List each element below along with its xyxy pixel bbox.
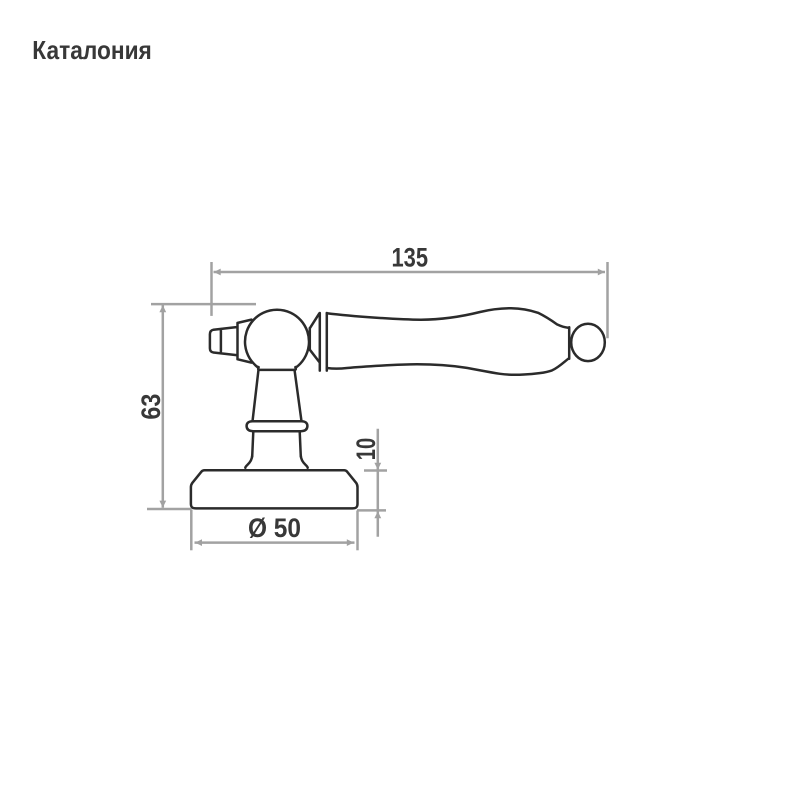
svg-text:Ø 50: Ø 50: [248, 513, 301, 543]
svg-text:63: 63: [136, 394, 166, 420]
svg-text:10: 10: [351, 438, 381, 461]
svg-text:Каталония: Каталония: [32, 37, 152, 65]
svg-text:135: 135: [392, 242, 429, 272]
